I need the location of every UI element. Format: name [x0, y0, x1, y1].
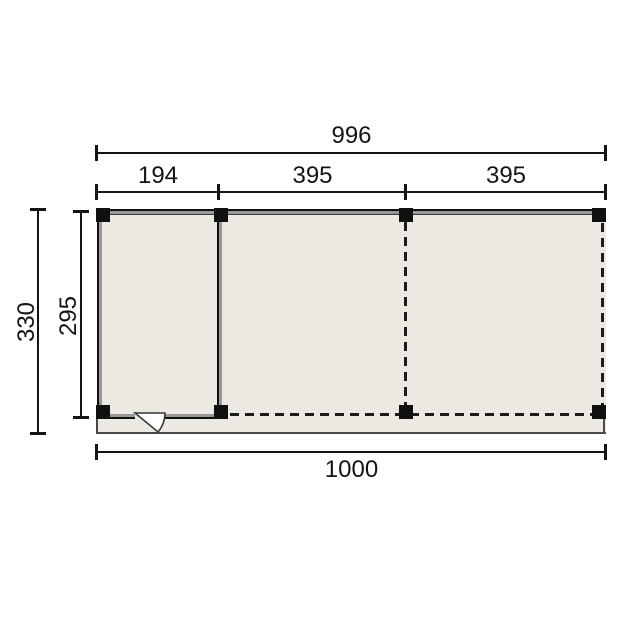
- dim-line-depth-inner: [80, 211, 82, 419]
- dim-label-segment-3: 395: [406, 163, 606, 189]
- dim-tick: [95, 145, 98, 161]
- dim-label-total-length: 1000: [97, 457, 606, 483]
- dim-line-segments: [97, 191, 606, 193]
- dim-label-total-width: 996: [97, 123, 606, 149]
- dim-tick: [73, 416, 89, 419]
- dim-label-segment-1: 194: [97, 163, 219, 189]
- room-left-wall: [97, 215, 102, 414]
- dim-label-depth-inner: 295: [56, 296, 82, 336]
- dim-tick: [404, 184, 407, 200]
- dim-tick: [30, 208, 46, 211]
- back-wall: [97, 209, 606, 215]
- dim-line-total-width: [97, 152, 606, 154]
- dim-tick: [73, 210, 89, 213]
- door-leaf-icon: [135, 413, 165, 432]
- dim-line-total-length: [97, 451, 606, 453]
- front-slab-edge-left: [96, 417, 98, 434]
- post-bottom-1: [96, 405, 110, 419]
- dim-tick: [604, 145, 607, 161]
- post-top-3: [399, 208, 413, 222]
- open-right-dashed-line: [601, 223, 604, 406]
- post-bottom-3: [399, 405, 413, 419]
- room-partition-wall: [217, 215, 222, 414]
- dim-line-depth-outer: [37, 209, 39, 435]
- floor-area: [97, 213, 606, 434]
- dim-tick: [30, 432, 46, 435]
- bay-divider-dashed-line: [404, 222, 407, 406]
- dim-tick: [604, 184, 607, 200]
- dim-tick: [95, 184, 98, 200]
- post-top-2: [214, 208, 228, 222]
- post-bottom-2: [214, 405, 228, 419]
- post-bottom-4: [592, 405, 606, 419]
- post-top-4: [592, 208, 606, 222]
- front-slab-edge-right: [603, 419, 605, 434]
- door-swing-symbol: [128, 408, 174, 438]
- post-top-1: [96, 208, 110, 222]
- floorplan-drawing: 996 194 395 395 330 295 1000: [0, 0, 630, 630]
- dim-label-segment-2: 395: [219, 163, 406, 189]
- dim-tick: [217, 184, 220, 200]
